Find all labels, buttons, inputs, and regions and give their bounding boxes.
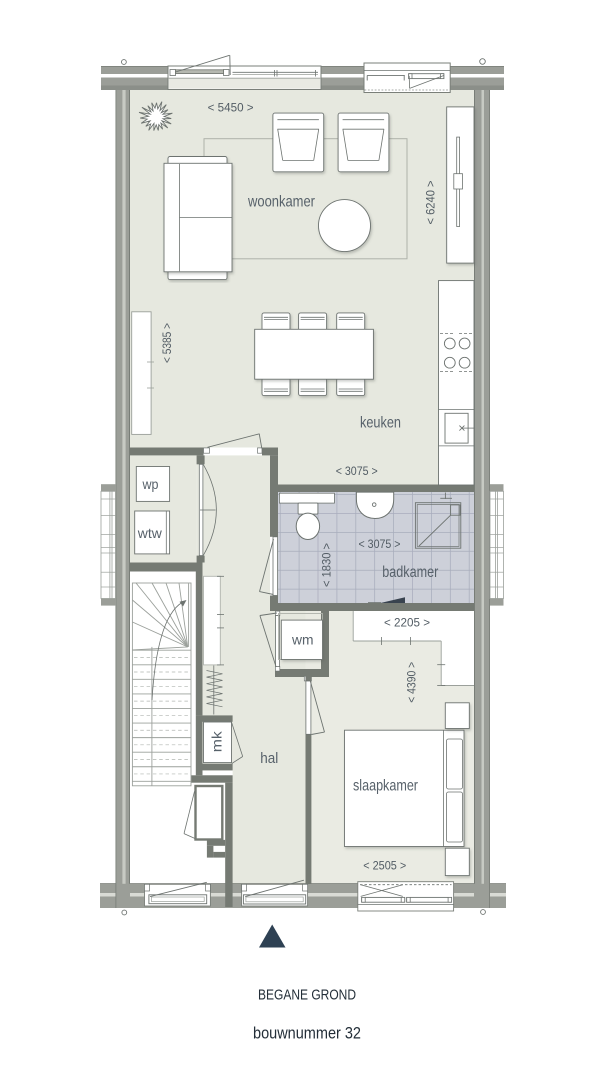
svg-text:wtw: wtw [137, 525, 163, 541]
svg-text:< 1830 >: < 1830 > [319, 543, 333, 587]
svg-text:bouwnummer 32: bouwnummer 32 [253, 1024, 361, 1042]
svg-text:mk: mk [209, 730, 225, 752]
svg-text:< 2505 >: < 2505 > [363, 858, 406, 872]
svg-text:< 4390 >: < 4390 > [404, 662, 418, 703]
svg-text:< 3075 >: < 3075 > [336, 464, 378, 478]
svg-text:< 3075 >: < 3075 > [359, 537, 401, 551]
svg-text:< 5385 >: < 5385 > [160, 323, 174, 363]
svg-text:woonkamer: woonkamer [247, 194, 315, 211]
svg-text:badkamer: badkamer [382, 564, 439, 581]
svg-text:< 6240 >: < 6240 > [423, 180, 437, 224]
svg-text:< 5450 >: < 5450 > [208, 101, 254, 115]
svg-text:wm: wm [291, 632, 313, 648]
svg-text:keuken: keuken [360, 415, 401, 432]
svg-text:hal: hal [260, 750, 278, 767]
svg-text:slaapkamer: slaapkamer [353, 778, 419, 795]
svg-text:BEGANE GROND: BEGANE GROND [258, 988, 356, 1004]
svg-text:< 2205 >: < 2205 > [384, 616, 430, 630]
svg-text:wp: wp [142, 476, 159, 492]
